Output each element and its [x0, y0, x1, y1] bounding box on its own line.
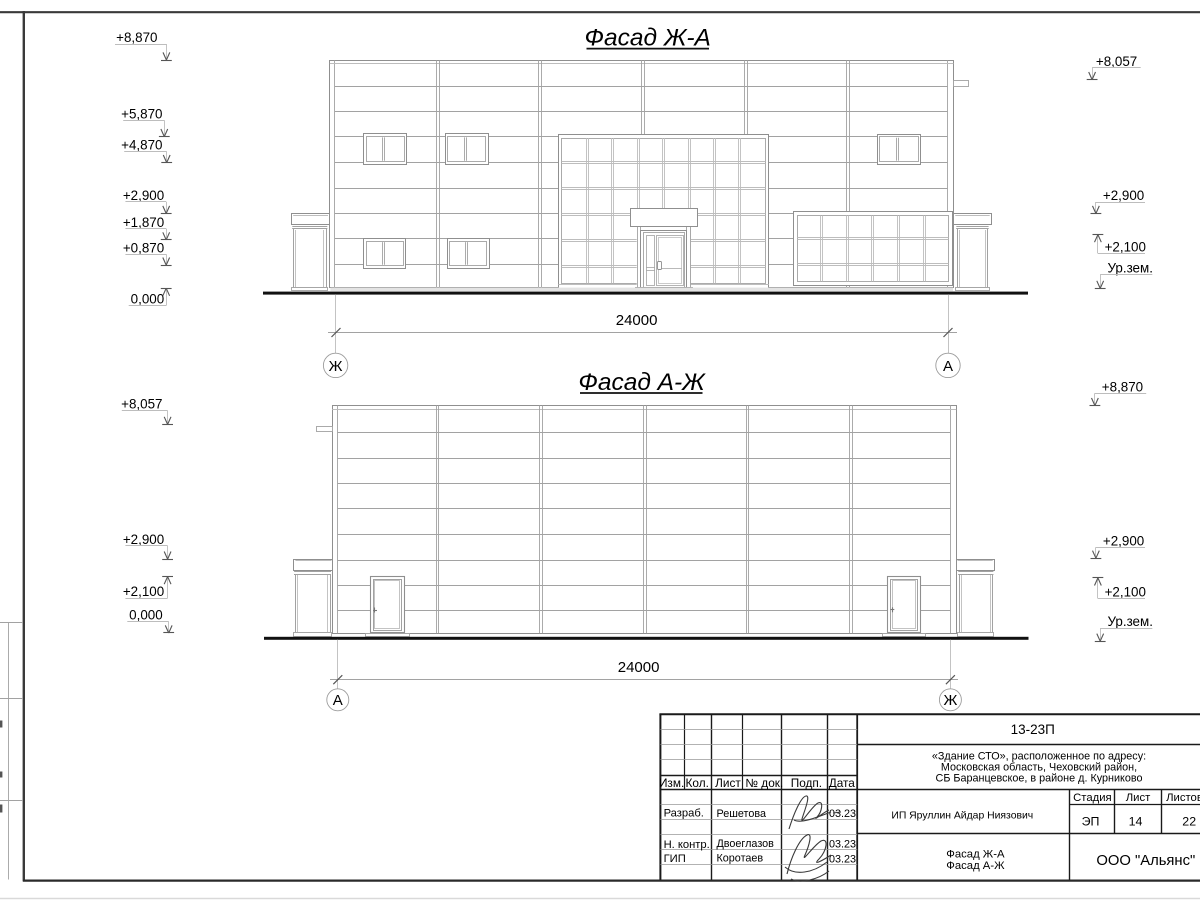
svg-text:+2,900: +2,900: [1103, 188, 1144, 203]
svg-text:Кол.: Кол.: [686, 776, 709, 790]
svg-text:14: 14: [1129, 814, 1143, 828]
svg-text:+2,900: +2,900: [123, 188, 164, 203]
svg-text:+2,100: +2,100: [1105, 585, 1146, 600]
svg-text:03.23: 03.23: [829, 853, 856, 865]
svg-text:+2,100: +2,100: [1105, 240, 1146, 255]
svg-text:Фасад Ж-А: Фасад Ж-А: [946, 849, 1005, 861]
svg-text:03.23: 03.23: [829, 808, 856, 820]
svg-text:ГИП: ГИП: [664, 853, 686, 865]
svg-text:+5,870: +5,870: [121, 107, 162, 122]
svg-text:13-23П: 13-23П: [1011, 722, 1055, 737]
svg-text:+1,870: +1,870: [123, 215, 164, 230]
svg-text:№ док.: № док.: [745, 776, 783, 790]
svg-text:03.23: 03.23: [829, 838, 856, 850]
svg-text:0,000: 0,000: [129, 608, 163, 623]
svg-text:+8,057: +8,057: [121, 397, 162, 412]
svg-text:Ур.зем.: Ур.зем.: [1108, 614, 1153, 629]
svg-text:Листов: Листов: [1166, 792, 1200, 804]
svg-text:Лист: Лист: [715, 776, 741, 790]
svg-text:Изм.: Изм.: [659, 776, 684, 790]
svg-text:Н. контр.: Н. контр.: [664, 839, 710, 851]
svg-text:Лист: Лист: [1126, 792, 1151, 804]
svg-text:ИП Яруллин Айдар Ниязович: ИП Яруллин Айдар Ниязович: [891, 811, 1033, 822]
svg-text:А: А: [943, 358, 953, 375]
svg-text:Подп.: Подп.: [791, 776, 822, 790]
svg-text:Двоеглазов: Двоеглазов: [717, 838, 775, 850]
svg-text:24000: 24000: [616, 312, 658, 329]
svg-text:+2,900: +2,900: [1103, 533, 1144, 548]
svg-text:Разраб.: Разраб.: [664, 808, 704, 820]
svg-text:0,000: 0,000: [131, 292, 165, 307]
svg-text:Стадия: Стадия: [1073, 792, 1112, 804]
svg-text:А: А: [333, 692, 343, 709]
svg-text:+0,870: +0,870: [123, 241, 164, 256]
svg-text:+2,900: +2,900: [123, 532, 164, 547]
svg-text:Ж: Ж: [329, 358, 343, 375]
svg-text:+8,057: +8,057: [1096, 54, 1137, 69]
svg-text:Ж: Ж: [943, 692, 957, 709]
svg-text:24000: 24000: [618, 659, 660, 676]
svg-text:Ур.зем.: Ур.зем.: [1108, 260, 1153, 275]
svg-text:+2,100: +2,100: [123, 584, 164, 599]
svg-text:+8,870: +8,870: [1102, 380, 1143, 395]
svg-text:ООО "Альянс": ООО "Альянс": [1096, 853, 1195, 869]
svg-text:+4,870: +4,870: [121, 138, 162, 153]
svg-text:Фасад А-Ж: Фасад А-Ж: [578, 369, 706, 396]
svg-text:Коротаев: Коротаев: [717, 852, 764, 864]
svg-text:Дата: Дата: [829, 776, 856, 790]
svg-text:Фасад Ж-А: Фасад Ж-А: [585, 25, 711, 52]
svg-text:+8,870: +8,870: [116, 30, 157, 45]
svg-text:Решетова: Решетова: [717, 808, 767, 820]
svg-text:ЭП: ЭП: [1082, 814, 1100, 828]
svg-text:22: 22: [1182, 814, 1196, 828]
svg-text:СБ Баранцевское, в районе д. К: СБ Баранцевское, в районе д. Курниково: [936, 773, 1143, 785]
svg-text:Фасад А-Ж: Фасад А-Ж: [946, 860, 1005, 872]
